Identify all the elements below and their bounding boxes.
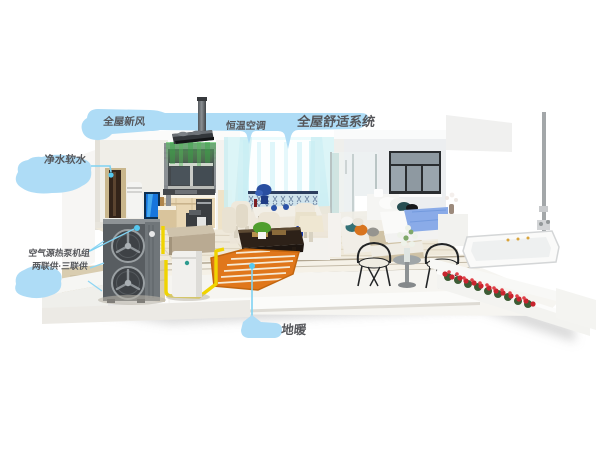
svg-text:净水软水: 净水软水 xyxy=(44,153,88,166)
svg-text:地暖: 地暖 xyxy=(281,322,308,337)
svg-text:两联供·三联供: 两联供·三联供 xyxy=(32,260,89,271)
svg-text:全屋舒适系统: 全屋舒适系统 xyxy=(295,114,375,129)
svg-text:空气源热泵机组: 空气源热泵机组 xyxy=(28,247,91,258)
svg-text:全屋新风: 全屋新风 xyxy=(102,115,147,128)
svg-text:恒温空调: 恒温空调 xyxy=(225,119,266,132)
